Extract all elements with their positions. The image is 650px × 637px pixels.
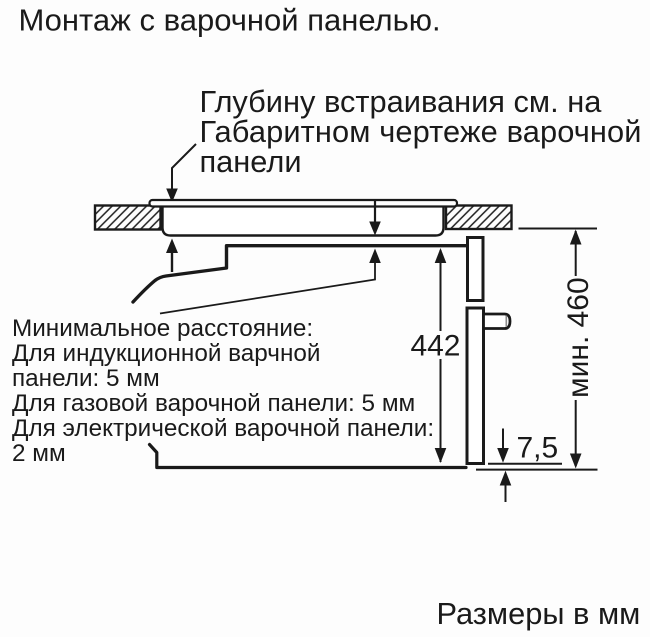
svg-text:Размеры в мм: Размеры в мм bbox=[437, 596, 641, 631]
svg-text:7,5: 7,5 bbox=[517, 432, 559, 465]
svg-text:442: 442 bbox=[410, 330, 460, 363]
svg-text:мин. 460: мин. 460 bbox=[562, 277, 595, 398]
svg-text:Монтаж с варочной панелью.: Монтаж с варочной панелью. bbox=[19, 3, 441, 38]
